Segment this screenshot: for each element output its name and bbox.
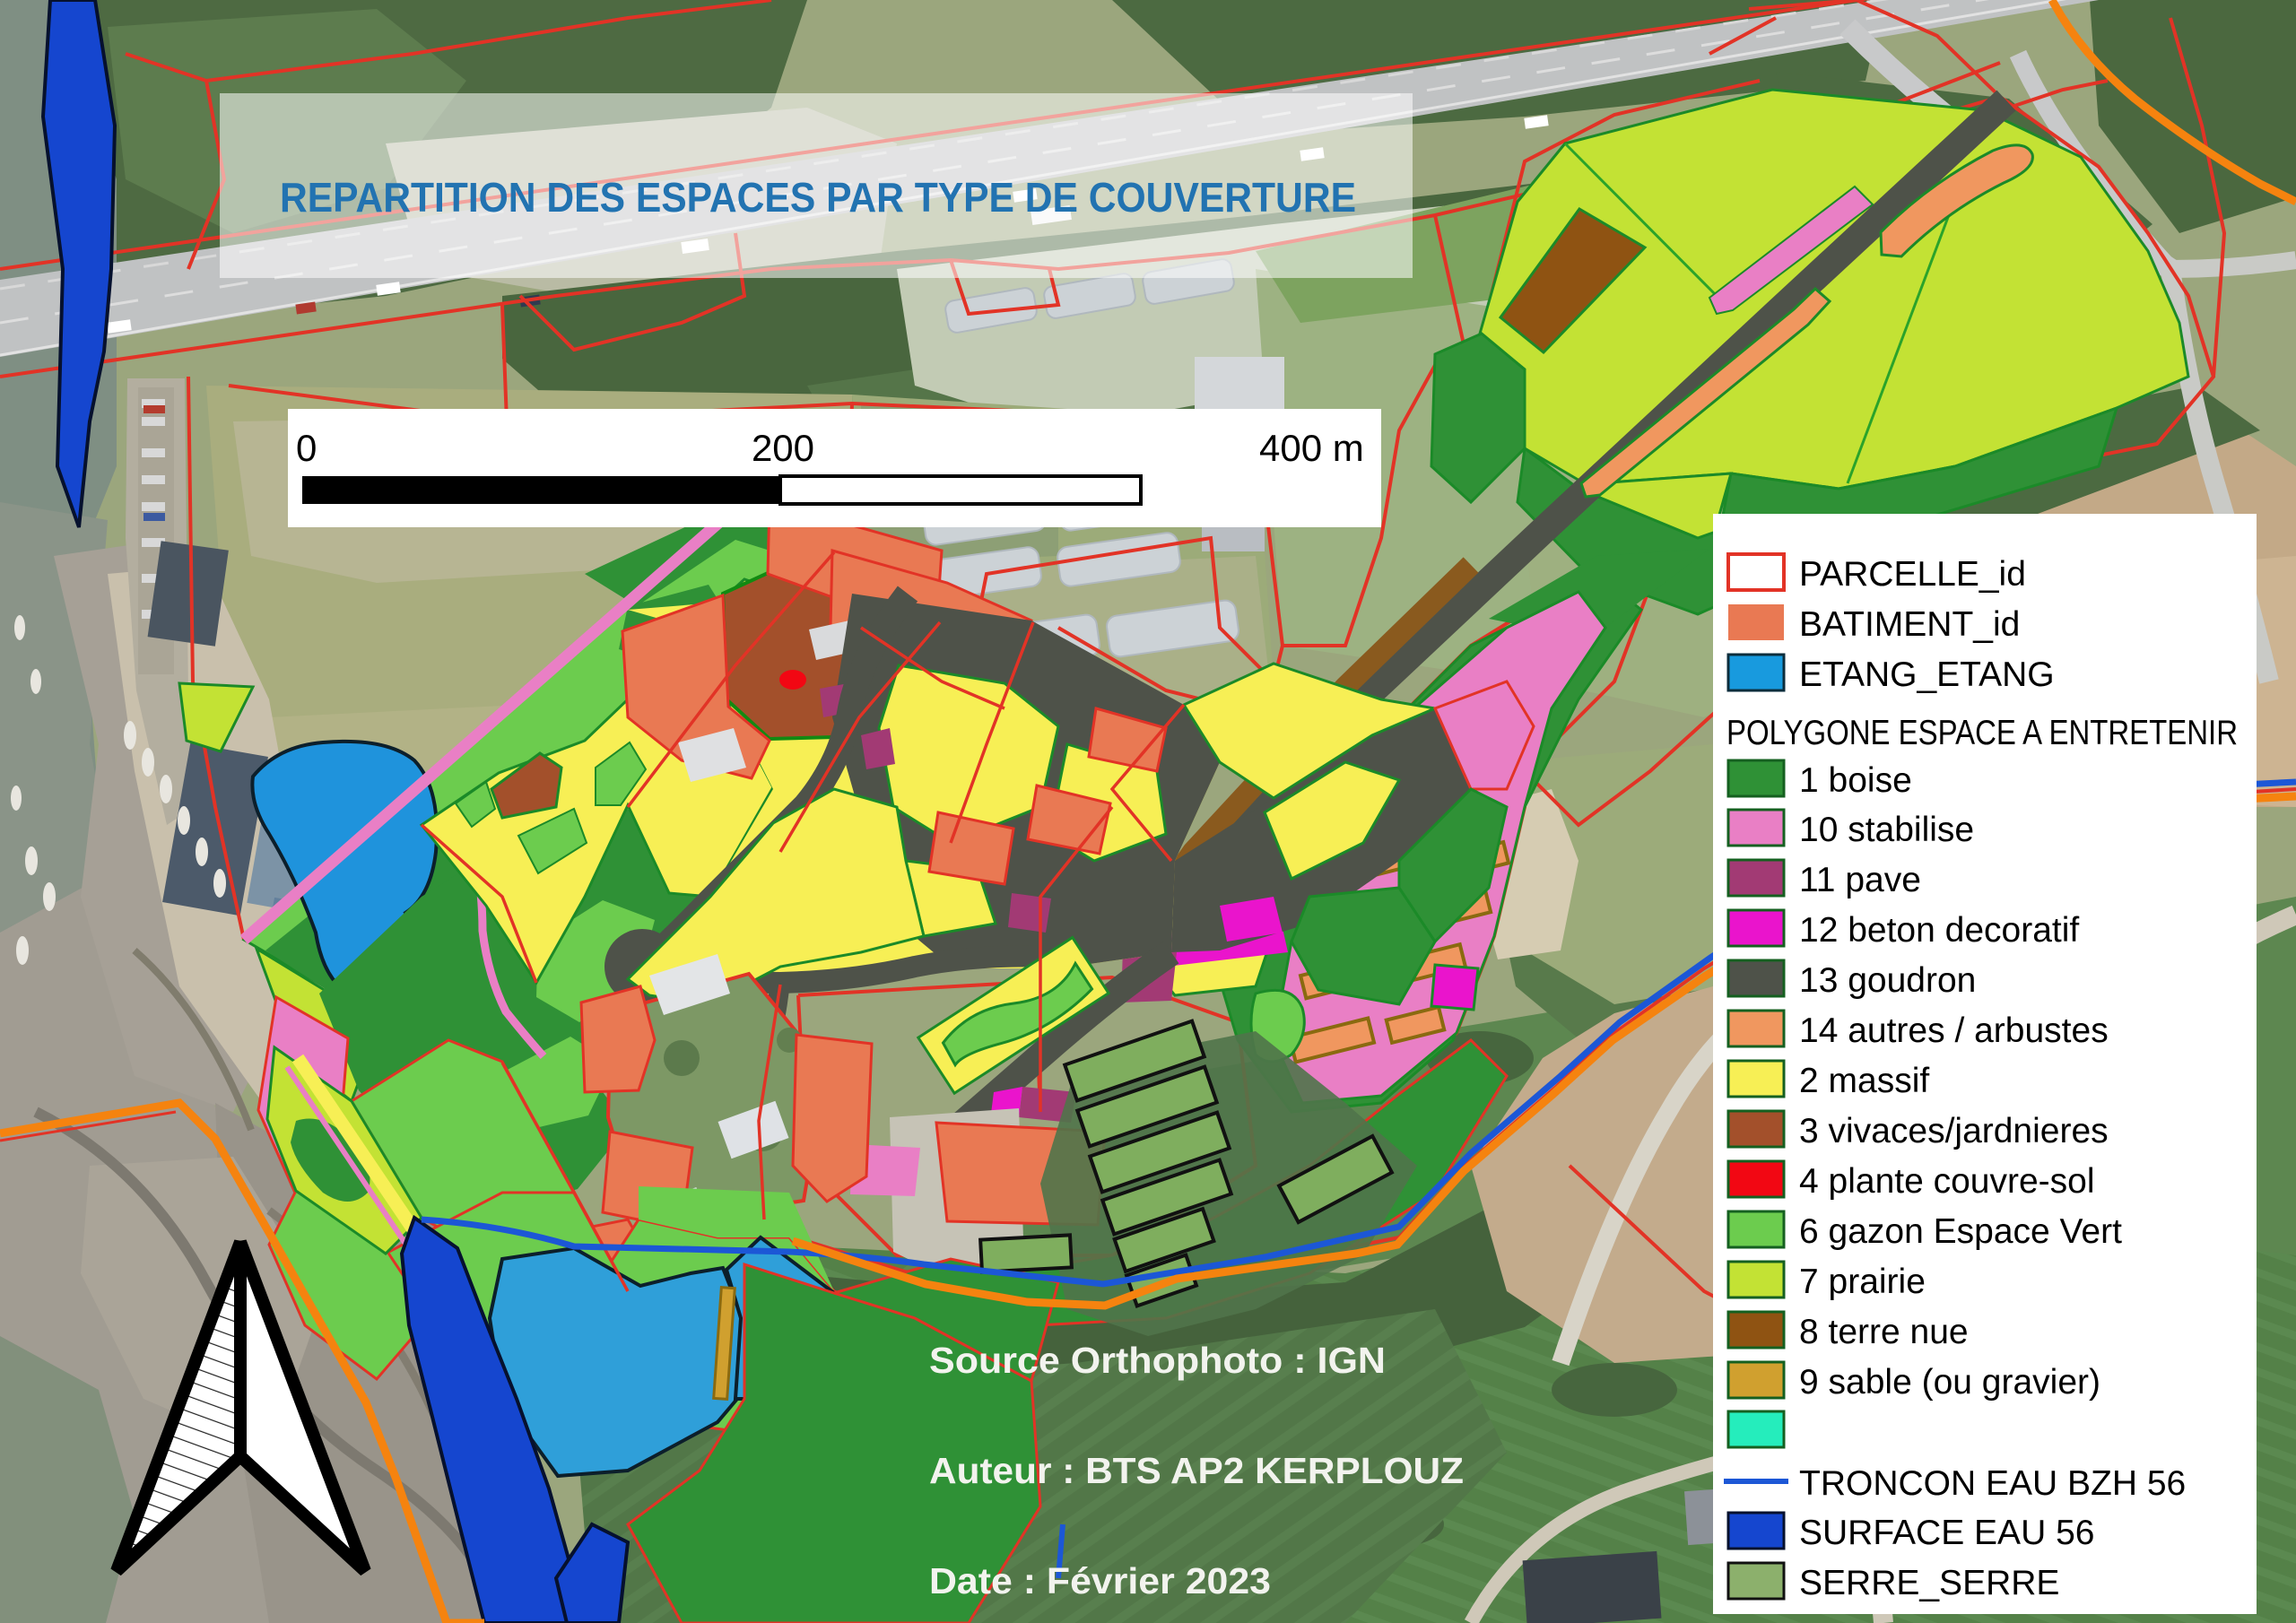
svg-text:8 terre nue: 8 terre nue: [1799, 1313, 1969, 1351]
svg-text:7 prairie: 7 prairie: [1799, 1263, 1926, 1301]
svg-text:9 sable (ou gravier): 9 sable (ou gravier): [1799, 1363, 2100, 1402]
svg-text:14 autres / arbustes: 14 autres / arbustes: [1799, 1011, 2109, 1050]
svg-text:Source Orthophoto : IGN: Source Orthophoto : IGN: [929, 1340, 1386, 1381]
svg-text:SURFACE EAU 56: SURFACE EAU 56: [1799, 1514, 2094, 1552]
svg-text:Date : Février 2023: Date : Février 2023: [929, 1560, 1271, 1601]
svg-text:11 pave: 11 pave: [1799, 861, 1921, 899]
svg-text:TRONCON EAU BZH 56: TRONCON EAU BZH 56: [1799, 1464, 2186, 1503]
svg-text:12 beton decoratif: 12 beton decoratif: [1799, 911, 2079, 950]
svg-text:REPARTITION DES ESPACES PAR TY: REPARTITION DES ESPACES PAR TYPE DE COUV…: [280, 174, 1356, 221]
svg-text:200: 200: [752, 427, 814, 469]
svg-text:13 goudron: 13 goudron: [1799, 961, 1976, 1000]
svg-text:ETANG_ETANG: ETANG_ETANG: [1799, 655, 2055, 694]
svg-text:1 boise: 1 boise: [1799, 761, 1912, 800]
svg-text:3 vivaces/jardnieres: 3 vivaces/jardnieres: [1799, 1112, 2109, 1150]
svg-text:6 gazon Espace Vert: 6 gazon Espace Vert: [1799, 1212, 2122, 1251]
svg-text:4 plante couvre-sol: 4 plante couvre-sol: [1799, 1162, 2095, 1201]
svg-text:Auteur : BTS AP2 KERPLOUZ: Auteur : BTS AP2 KERPLOUZ: [929, 1450, 1464, 1491]
svg-text:10 stabilise: 10 stabilise: [1799, 811, 1974, 849]
svg-text:POLYGONE ESPACE A ENTRETENIR: POLYGONE ESPACE A ENTRETENIR: [1726, 714, 2238, 752]
svg-text:2 massif: 2 massif: [1799, 1062, 1929, 1100]
svg-text:PARCELLE_id: PARCELLE_id: [1799, 555, 2026, 594]
svg-text:0: 0: [296, 427, 317, 469]
svg-text:BATIMENT_id: BATIMENT_id: [1799, 605, 2020, 644]
svg-text:SERRE_SERRE: SERRE_SERRE: [1799, 1564, 2059, 1602]
svg-text:400 m: 400 m: [1259, 427, 1364, 469]
